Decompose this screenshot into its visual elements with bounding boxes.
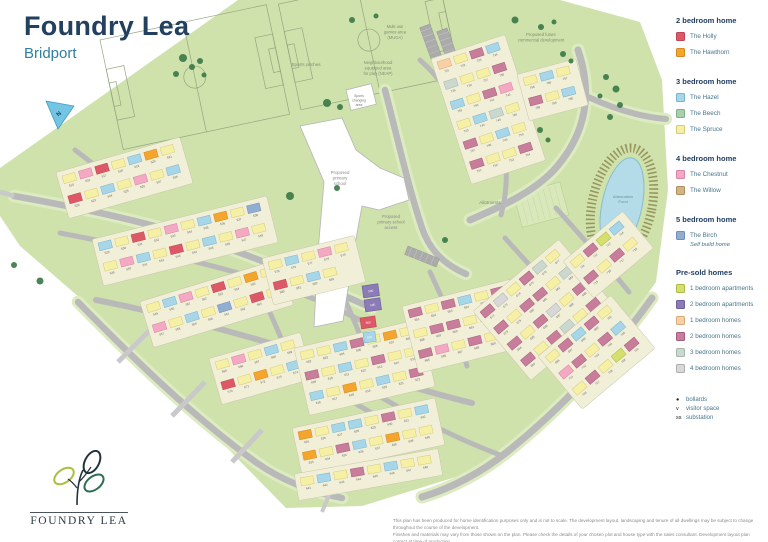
tree — [569, 59, 574, 64]
legend-item-label: The Spruce — [690, 126, 723, 133]
tree — [538, 24, 544, 30]
legend-item-p1home: 1 bedroom homes — [676, 316, 766, 325]
tree — [286, 192, 294, 200]
tree — [349, 17, 355, 23]
legend-item-label: The Chestnut — [690, 171, 728, 178]
tree — [617, 102, 623, 108]
legend-item-p1apt: 1 bedroom apartments — [676, 284, 766, 293]
block-number: 600 — [365, 320, 371, 325]
legend-item-p3home: 3 bedroom homes — [676, 348, 766, 357]
legend-item-p2apt: 2 bedroom apartments — [676, 300, 766, 309]
tree — [189, 64, 195, 70]
swatch-p1apt — [676, 284, 685, 293]
tree — [197, 58, 203, 64]
tree — [546, 138, 551, 143]
tree — [11, 262, 17, 268]
logo-plant-icon — [30, 450, 128, 506]
developer-logo: FOUNDRY LEA — [30, 450, 128, 527]
legend-section: 5 bedroom homeThe BirchSelf build home — [676, 215, 766, 248]
legend-item-note: Self build home — [690, 242, 766, 248]
marker-label: bollards — [686, 397, 707, 403]
marker-symbol: ss — [676, 415, 686, 421]
legend-marker-bollards: ●bollards — [676, 397, 766, 403]
legend-item-label: The Willow — [690, 187, 721, 194]
legend-marker-visitor-space: vvisitor space — [676, 406, 766, 412]
tree — [173, 71, 179, 77]
page-subtitle: Bridport — [24, 46, 189, 63]
legend-section: 2 bedroom homeThe HollyThe Hawthorn — [676, 16, 766, 57]
swatch-p4home — [676, 364, 685, 373]
marker-symbol: v — [676, 406, 686, 412]
tree — [442, 237, 448, 243]
marker-label: visitor space — [686, 406, 719, 412]
swatch-chestnut — [676, 170, 685, 179]
legend-section: Pre-sold homes1 bedroom apartments2 bedr… — [676, 268, 766, 373]
header: Foundry Lea Bridport — [24, 12, 189, 62]
legend-item-p4home: 4 bedroom homes — [676, 364, 766, 373]
legend-item-label: The Holly — [690, 33, 717, 40]
legend-item-beech: The Beech — [676, 109, 766, 118]
feature-block: 595 — [364, 298, 382, 312]
tree — [607, 114, 613, 120]
page-title: Foundry Lea — [24, 12, 189, 42]
legend: 2 bedroom homeThe HollyThe Hawthorn3 bed… — [676, 16, 766, 424]
tree — [37, 278, 44, 285]
swatch-p1home — [676, 316, 685, 325]
swatch-holly — [676, 32, 685, 41]
swatch-willow — [676, 186, 685, 195]
swatch-birch — [676, 231, 685, 240]
legend-section-heading: 3 bedroom home — [676, 77, 766, 86]
block-number: 601 — [367, 335, 373, 340]
tree — [512, 17, 519, 24]
tree — [374, 14, 379, 19]
swatch-spruce — [676, 125, 685, 134]
legend-section-heading: Pre-sold homes — [676, 268, 766, 277]
tree — [552, 20, 557, 25]
legend-item-label: 3 bedroom homes — [690, 349, 741, 356]
marker-label: substation — [686, 415, 713, 421]
legend-item-holly: The Holly — [676, 32, 766, 41]
disclaimer-line1: This plan has been produced for home ide… — [393, 517, 765, 531]
site-plan-page: 5155165175185195205215225235245255265275… — [0, 0, 768, 542]
tree — [337, 104, 343, 110]
swatch-p3home — [676, 348, 685, 357]
legend-item-hazel: The Hazel — [676, 93, 766, 102]
legend-item-label: 4 bedroom homes — [690, 365, 741, 372]
disclaimer-line2: Finishes and materials may vary from tho… — [393, 531, 765, 542]
legend-section-heading: 5 bedroom home — [676, 215, 766, 224]
legend-section: 4 bedroom homeThe ChestnutThe Willow — [676, 154, 766, 195]
legend-item-p2home: 2 bedroom homes — [676, 332, 766, 341]
tree — [323, 99, 331, 107]
feature-block: 600 — [360, 316, 376, 329]
tree — [598, 94, 603, 99]
swatch-p2home — [676, 332, 685, 341]
legend-item-label: 2 bedroom apartments — [690, 301, 753, 308]
legend-section-heading: 2 bedroom home — [676, 16, 766, 25]
swatch-hawthorn — [676, 48, 685, 57]
legend-section-heading: 4 bedroom home — [676, 154, 766, 163]
swatch-p2apt — [676, 300, 685, 309]
legend-item-chestnut: The Chestnut — [676, 170, 766, 179]
legend-markers: ●bollardsvvisitor spacesssubstation — [676, 397, 766, 421]
legend-item-spruce: The Spruce — [676, 125, 766, 134]
feature-block: 590 — [362, 284, 380, 298]
legend-item-label: The Hawthorn — [690, 49, 730, 56]
legend-item-willow: The Willow — [676, 186, 766, 195]
tree — [603, 74, 609, 80]
legend-item-label: The Beech — [690, 110, 720, 117]
legend-item-hawthorn: The Hawthorn — [676, 48, 766, 57]
map-label: Neighbourhoodequipped areafor play (NEAP… — [363, 60, 393, 76]
legend-item-label: 1 bedroom homes — [690, 317, 741, 324]
legend-item-label: 1 bedroom apartments — [690, 285, 753, 292]
tree — [537, 127, 543, 133]
feature-block: 601 — [363, 331, 376, 343]
swatch-hazel — [676, 93, 685, 102]
legend-section: 3 bedroom homeThe HazelThe BeechThe Spru… — [676, 77, 766, 134]
tree — [613, 86, 620, 93]
legend-item-label: The Birch — [690, 232, 717, 239]
map-label: Allotments — [479, 200, 501, 205]
tree — [560, 51, 566, 57]
block-number: 595 — [370, 303, 376, 308]
tree — [202, 73, 207, 78]
legend-item-label: 2 bedroom homes — [690, 333, 741, 340]
legend-marker-substation: sssubstation — [676, 415, 766, 421]
block-number: 590 — [368, 289, 374, 294]
legend-item-birch: The Birch — [676, 231, 766, 240]
marker-symbol: ● — [676, 397, 686, 403]
logo-text: FOUNDRY LEA — [30, 513, 128, 527]
swatch-beech — [676, 109, 685, 118]
disclaimer: This plan has been produced for home ide… — [393, 517, 765, 542]
legend-item-label: The Hazel — [690, 94, 719, 101]
map-label: Sports pitches — [291, 62, 321, 67]
